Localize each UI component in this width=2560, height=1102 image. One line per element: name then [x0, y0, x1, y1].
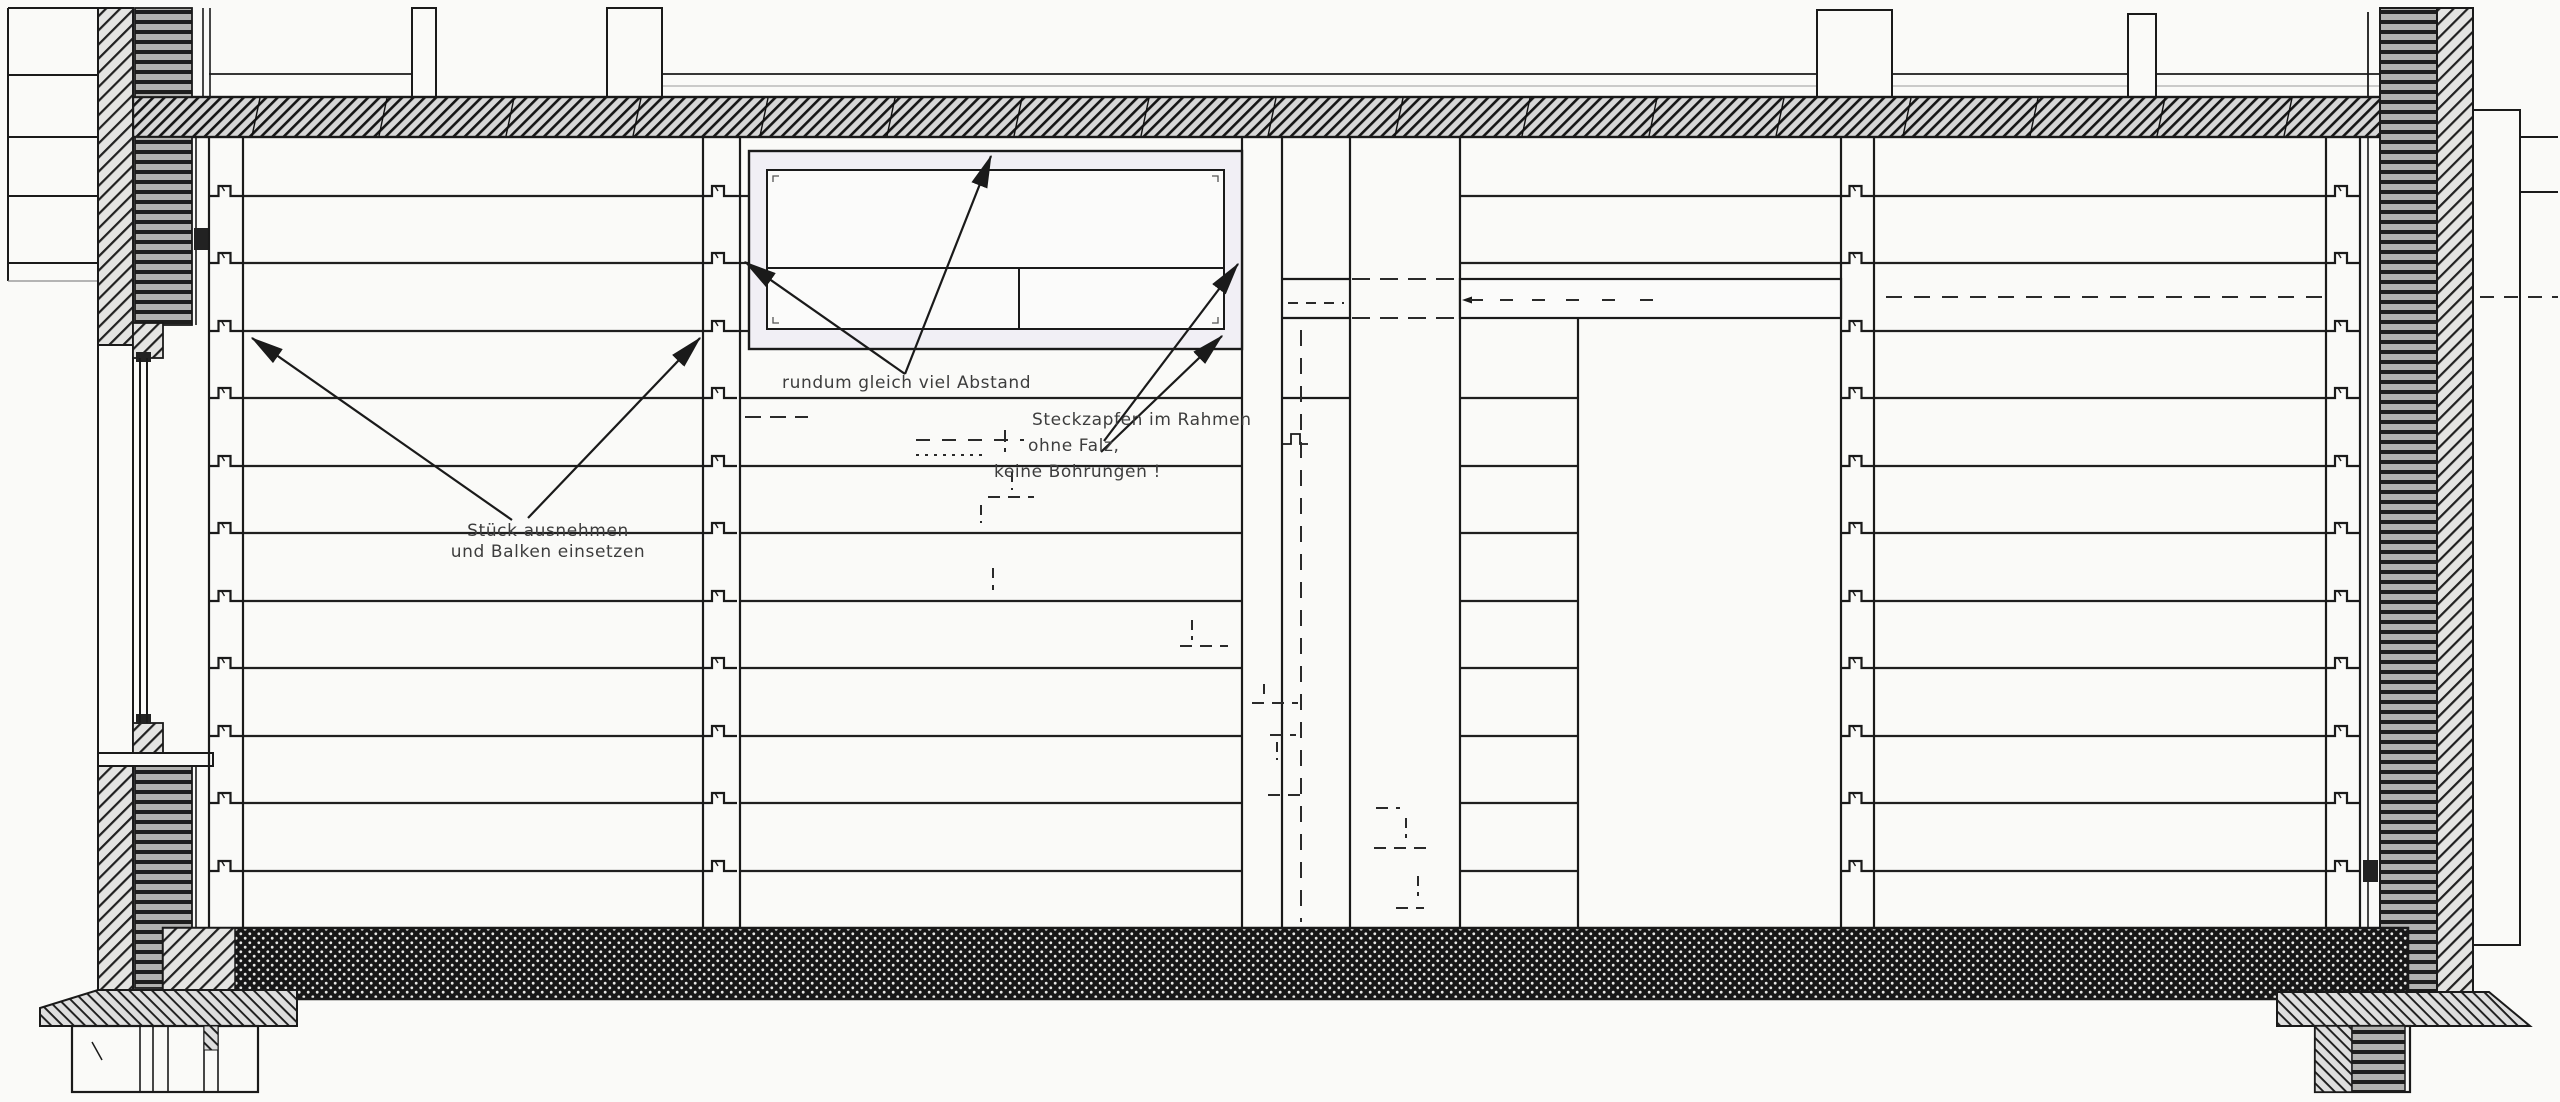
note-cut-out-line1: Stück ausnehmen: [408, 521, 688, 542]
window-sill-board: [98, 753, 213, 766]
sill-beam: [163, 928, 2408, 999]
note-frame-line3: keine Bohrungen !: [994, 459, 1252, 485]
left-footing-cap: [40, 990, 297, 1026]
note-equal-gap-text: rundum gleich viel Abstand: [782, 373, 1031, 393]
note-frame-line2: ohne Falz,: [1028, 433, 1252, 459]
note-cut-out-piece: Stück ausnehmen und Balken einsetzen: [408, 521, 688, 563]
window-sash: [767, 170, 1224, 329]
note-frame-tenons: Steckzapfen im Rahmen ohne Falz, keine B…: [994, 407, 1252, 485]
window-frame: [749, 151, 1242, 349]
construction-drawing: [0, 0, 2560, 1102]
outer-facing-board: [2473, 110, 2520, 945]
door-lintel: [1460, 279, 1841, 318]
right-footing-cap: [2277, 992, 2530, 1026]
window-sill-block: [133, 723, 163, 753]
note-cut-out-line2: und Balken einsetzen: [408, 542, 688, 563]
note-equal-gap: rundum gleich viel Abstand: [782, 373, 1031, 394]
drawing-sheet: Stück ausnehmen und Balken einsetzen run…: [0, 0, 2560, 1102]
left-footing: [40, 990, 297, 1092]
left-footing-pier: [72, 1026, 258, 1092]
top-plate-beam: [133, 97, 2386, 137]
note-frame-line1: Steckzapfen im Rahmen: [1032, 407, 1252, 433]
